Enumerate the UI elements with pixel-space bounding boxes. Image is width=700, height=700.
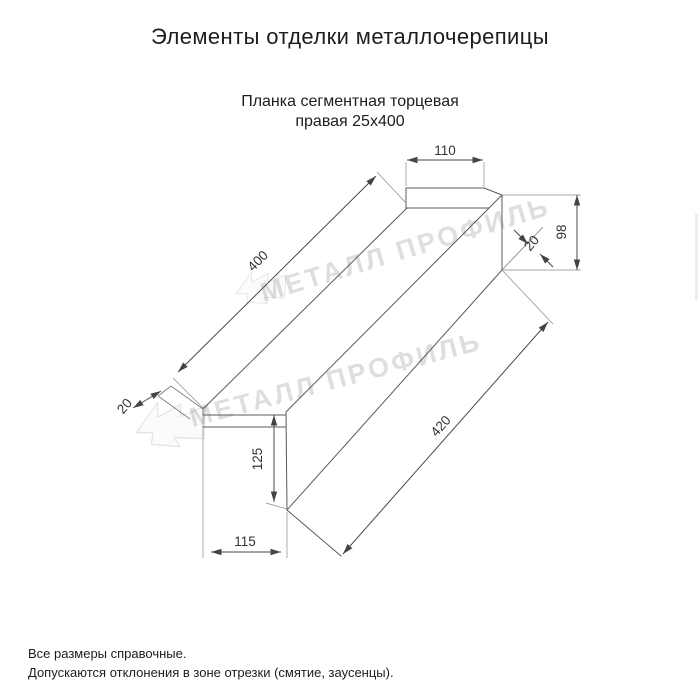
watermark-edge-fragment [695,214,698,300]
dim-bottom-length: 420 [428,413,454,440]
dim-slope-length: 400 [245,248,272,275]
watermark-upper: МЕТАЛЛ ПРОФИЛЬ [232,191,554,311]
watermark-lower: МЕТАЛЛ ПРОФИЛЬ [130,326,485,456]
dim-end-hem: 20 [521,233,542,254]
footer-note-deviations: Допускаются отклонения в зоне отрезки (с… [28,663,628,682]
dim-top-width: 110 [434,143,456,158]
dim-left-width: 115 [234,534,256,549]
dim-left-height: 125 [250,448,265,471]
technical-drawing: МЕТАЛЛ ПРОФИЛЬ МЕТАЛЛ ПРОФИЛЬ [0,0,700,700]
dim-left-hem: 20 [114,396,135,417]
footer-note-dimensions: Все размеры справочные. [28,644,628,663]
dim-end-height: 98 [554,224,569,239]
footer-notes: Все размеры справочные. Допускаются откл… [28,644,628,682]
